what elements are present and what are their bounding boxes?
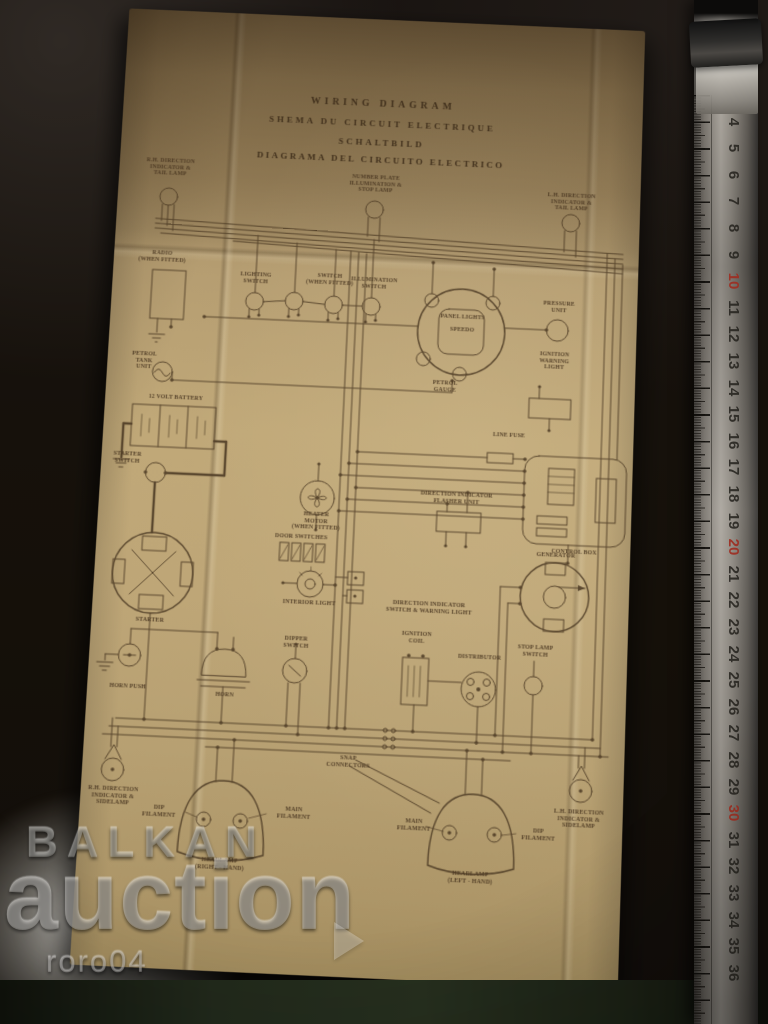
ruler-number: 15 [724, 401, 742, 427]
ruler-number: 6 [724, 162, 742, 188]
label-ignition-coil: IGNITION COIL [388, 630, 445, 646]
horn-symbol [195, 636, 252, 726]
horn-push-symbol [96, 627, 218, 675]
ruler-number: 11 [724, 295, 742, 321]
tape-end-shine [696, 62, 758, 114]
pressure-unit-symbol [528, 319, 574, 434]
ruler-cm-ticks [694, 95, 710, 1024]
ruler-number: 34 [724, 907, 742, 933]
ruler-number: 32 [724, 853, 742, 879]
door-switch-symbols [279, 542, 325, 562]
ruler-number: 20 [724, 534, 742, 560]
label-switch-when-fitted: SWITCH (WHEN FITTED) [304, 272, 356, 287]
label-dip-filament-left: DIP FILAMENT [516, 828, 561, 844]
ruler-number: 7 [724, 188, 742, 214]
ruler-number: 29 [724, 774, 742, 800]
label-lighting-switch: LIGHTING SWITCH [230, 271, 282, 286]
stop-lamp-switch-symbol [522, 661, 543, 756]
label-dipper-switch: DIPPER SWITCH [267, 635, 324, 651]
ignition-coil-symbol [399, 653, 462, 735]
photo-scene: WIRING DIAGRAM SHEMA DU CIRCUIT ELECTRIQ… [0, 0, 768, 1024]
label-rh-rear-lamp: R.H. DIRECTION INDICATOR & TAIL LAMP [139, 157, 203, 179]
label-main-filament-left: MAIN FILAMENT [389, 818, 439, 834]
ruler-number: 16 [724, 428, 742, 454]
label-pressure-unit: PRESSURE UNIT [536, 300, 582, 315]
ruler-number: 36 [724, 960, 742, 986]
label-number-plate-lamp: NUMBER PLATE ILLUMINATION & STOP LAMP [341, 174, 410, 196]
ruler-number: 26 [724, 694, 742, 720]
ruler-number: 33 [724, 880, 742, 906]
label-stop-lamp-switch: STOP LAMP SWITCH [506, 644, 565, 660]
label-ignition-warning-light: IGNITION WARNING LIGHT [528, 351, 580, 373]
watermark-username: roro04 [46, 944, 148, 980]
ruler-number: 9 [724, 242, 742, 268]
label-main-filament-right: MAIN FILAMENT [269, 806, 319, 822]
fuse-and-control-wires [337, 446, 527, 521]
label-starter-switch: STARTER SWITCH [103, 450, 152, 465]
ruler-number: 5 [724, 135, 742, 161]
speedo-gauge-symbol [199, 251, 550, 385]
ruler-number: 24 [724, 641, 742, 667]
play-icon [334, 922, 364, 960]
table-edge [0, 980, 768, 1024]
ruler-number: 21 [724, 561, 742, 587]
radio-symbol [148, 269, 186, 343]
ruler-number: 31 [724, 827, 742, 853]
starter-switch-symbol [140, 462, 168, 533]
ruler-number: 17 [724, 454, 742, 480]
label-illumination-switch: ILLUMINATION SWITCH [349, 276, 399, 291]
wiring-bus-lines [125, 218, 624, 757]
ruler-number: 10 [724, 268, 742, 294]
ruler-number: 35 [724, 933, 742, 959]
ruler-number: 22 [724, 587, 742, 613]
interior-light-symbol [281, 566, 338, 599]
label-petrol-gauge: PETROL GAUGE [422, 379, 468, 394]
tape-top-shadow [694, 0, 758, 24]
label-radio: RADIO (WHEN FITTED) [133, 249, 191, 264]
ruler-number: 13 [724, 348, 742, 374]
battery-symbol [113, 403, 228, 475]
dipper-switch-symbol [279, 642, 308, 737]
tape-end-clip [689, 18, 763, 68]
label-petrol-tank-unit: PETROL TANK UNIT [123, 350, 166, 371]
ruler-number: 23 [724, 614, 742, 640]
rear-lamp-symbols [157, 188, 580, 258]
starter-motor-symbol [103, 531, 195, 723]
ruler-number: 18 [724, 481, 742, 507]
ruler-number: 25 [724, 667, 742, 693]
label-lh-rear-lamp: L.H. DIRECTION INDICATOR & TAIL LAMP [538, 192, 605, 214]
petrol-tank-symbol [152, 361, 454, 394]
ruler-number: 19 [724, 508, 742, 534]
ruler-number: 8 [724, 215, 742, 241]
label-lh-front-lamp: L.H. DIRECTION INDICATOR & SIDELAMP [541, 808, 617, 832]
label-heater-motor: HEATER MOTOR (WHEN FITTED) [280, 510, 353, 533]
watermark-brand-main: auction [4, 840, 356, 952]
ruler-number: 12 [724, 321, 742, 347]
ruler-number: 27 [724, 720, 742, 746]
ruler-number: 14 [724, 375, 742, 401]
ruler-tick-rule [711, 95, 712, 1024]
ruler-number: 30 [724, 800, 742, 826]
ruler-number: 28 [724, 747, 742, 773]
tape-measure: 4567891011121314151617181920212223242526… [688, 0, 768, 1024]
direction-indicator-switch-symbol [334, 571, 364, 604]
